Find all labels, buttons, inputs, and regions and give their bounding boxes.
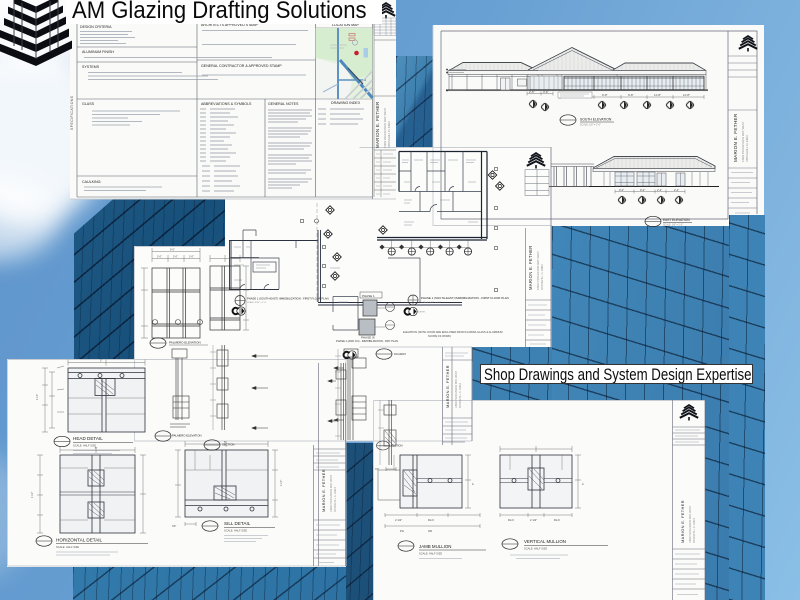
svg-text:MARION E. FETHER: MARION E. FETHER (445, 365, 450, 408)
svg-text:PH: PH (400, 529, 404, 533)
svg-text:SPRINGHILL FL 34610: SPRINGHILL FL 34610 (693, 518, 696, 543)
svg-text:GLASS: GLASS (82, 102, 95, 106)
svg-text:13902 PROCESSION WAY, WEST: 13902 PROCESSION WAY, WEST (741, 121, 745, 162)
svg-text:SPRINGHILL FL 34610: SPRINGHILL FL 34610 (459, 383, 462, 408)
svg-text:2 1/2": 2 1/2" (530, 518, 537, 522)
svg-text:PALMERO ELEVATION: PALMERO ELEVATION (172, 434, 202, 438)
svg-text:EAST ELEVATION: EAST ELEVATION (663, 218, 690, 222)
svg-text:SECTION: SECTION (391, 444, 403, 448)
svg-text:PHASE 1 (SOUTH-EAST) IMMOBILIZ: PHASE 1 (SOUTH-EAST) IMMOBILIZATION - FI… (421, 296, 509, 300)
svg-text:PHASE 1: PHASE 1 (362, 294, 375, 298)
svg-text:PALMERO: PALMERO (394, 353, 406, 356)
svg-text:MARION E. FETHER: MARION E. FETHER (733, 113, 738, 162)
svg-text:9'-0": 9'-0" (619, 188, 624, 192)
svg-text:SCALE: 3/32" = 1'-0": SCALE: 3/32" = 1'-0" (247, 301, 267, 304)
svg-text:5": 5" (472, 483, 475, 485)
svg-text:DRAWING INDEX: DRAWING INDEX (331, 101, 361, 105)
svg-text:3'-0": 3'-0" (157, 256, 162, 259)
svg-text:SCALE: HALF SIZE: SCALE: HALF SIZE (524, 547, 547, 551)
svg-text:SCALE: HALF SIZE: SCALE: HALF SIZE (419, 552, 442, 556)
svg-text:13902 PROCESSION WAY, WEST: 13902 PROCESSION WAY, WEST (689, 505, 692, 543)
svg-text:11'-8": 11'-8" (683, 93, 690, 97)
svg-text:ABBREVIATIONS & SYMBOLS: ABBREVIATIONS & SYMBOLS (201, 102, 252, 106)
svg-text:SPRINGHILL FL 34610: SPRINGHILL FL 34610 (745, 135, 749, 162)
svg-text:2'-4": 2'-4" (674, 188, 679, 192)
svg-text:CAULKING:: CAULKING: (82, 180, 101, 184)
svg-text:3/8": 3/8" (375, 468, 379, 471)
svg-text:9'-0": 9'-0" (640, 188, 645, 192)
svg-text:13902 PROCESSION WAY, WEST: 13902 PROCESSION WAY, WEST (383, 107, 387, 148)
svg-text:SCALE: HALF SIZE: SCALE: HALF SIZE (56, 545, 79, 549)
svg-text:VERTICAL MULLION: VERTICAL MULLION (524, 539, 566, 544)
svg-text:2 1/2": 2 1/2" (31, 492, 34, 498)
svg-text:SPRINGHILL FL 34610: SPRINGHILL FL 34610 (334, 487, 337, 512)
svg-text:HEAD DETAIL: HEAD DETAIL (73, 436, 103, 441)
svg-text:9'-0": 9'-0" (170, 249, 175, 252)
svg-text:SCOPE OF WORK): SCOPE OF WORK) (428, 334, 451, 338)
svg-text:MARION E. FETHER: MARION E. FETHER (680, 500, 685, 543)
svg-text:DLO: DLO (508, 518, 515, 522)
svg-text:MARION E. FETHER: MARION E. FETHER (321, 469, 326, 512)
svg-text:SCALE: 1/8" = 1'-0": SCALE: 1/8" = 1'-0" (663, 224, 683, 227)
svg-text:2'-6": 2'-6" (529, 90, 535, 94)
svg-text:2 1/2": 2 1/2" (395, 518, 402, 522)
svg-text:3'-0": 3'-0" (173, 256, 178, 259)
svg-text:DLO: DLO (428, 518, 435, 522)
svg-text:SILL DETAIL: SILL DETAIL (224, 521, 251, 526)
svg-text:OD: OD (428, 529, 432, 533)
svg-text:GENERAL NOTES: GENERAL NOTES (268, 102, 299, 106)
svg-text:3'-6": 3'-6" (543, 90, 549, 94)
svg-text:SECTION: SECTION (222, 443, 234, 447)
svg-text:5": 5" (582, 483, 585, 485)
svg-text:2 1/2": 2 1/2" (280, 480, 283, 486)
svg-text:3/8": 3/8" (172, 525, 176, 528)
svg-text:13902 PROCESSION WAY, WEST: 13902 PROCESSION WAY, WEST (537, 251, 540, 290)
svg-text:2 1/2": 2 1/2" (36, 394, 39, 400)
svg-text:HORIZONTAL DETAIL: HORIZONTAL DETAIL (56, 538, 103, 543)
svg-text:SPRINGHILL FL 34610: SPRINGHILL FL 34610 (387, 121, 391, 148)
svg-text:SPECIFICATIONS: SPECIFICATIONS (70, 95, 74, 130)
svg-text:11'-8": 11'-8" (654, 93, 661, 97)
svg-text:3'-0": 3'-0" (189, 256, 194, 259)
svg-text:SCALE: 1/8" = 1'-0": SCALE: 1/8" = 1'-0" (580, 124, 601, 127)
svg-text:13902 PROCESSION WAY, WEST: 13902 PROCESSION WAY, WEST (330, 474, 333, 512)
svg-text:PHASE 1 (AND CO) - IMMOBILIZAT: PHASE 1 (AND CO) - IMMOBILIZATION - DRY … (336, 339, 398, 343)
svg-text:SCALE: HALF SIZE: SCALE: HALF SIZE (224, 529, 247, 533)
svg-text:MARION E. FETHER: MARION E. FETHER (528, 245, 533, 290)
svg-text:DLO: DLO (554, 518, 561, 522)
svg-text:SCALE: 3/32" = 1'-0": SCALE: 3/32" = 1'-0" (421, 301, 441, 304)
svg-text:SCALE: HALF SIZE: SCALE: HALF SIZE (73, 444, 96, 448)
svg-text:NORTH: NORTH (417, 312, 425, 314)
svg-text:GENERAL CONTRACTOR & APPROVED: GENERAL CONTRACTOR & APPROVED STAMP (201, 64, 282, 68)
svg-text:PHASE 1 (SOUTH-EAST) IMMOBILIZ: PHASE 1 (SOUTH-EAST) IMMOBILIZATION - FI… (247, 297, 329, 301)
svg-text:PALMERO ELEVATION: PALMERO ELEVATION (169, 341, 201, 345)
svg-text:5": 5" (95, 447, 97, 450)
svg-text:MARION E. FETHER: MARION E. FETHER (375, 101, 380, 148)
svg-text:5": 5" (100, 360, 102, 363)
svg-text:13902 PROCESSION WAY, WEST: 13902 PROCESSION WAY, WEST (455, 370, 458, 408)
svg-text:SPRINGHILL FL 34610: SPRINGHILL FL 34610 (541, 263, 544, 290)
svg-text:9'-8": 9'-8" (628, 93, 634, 97)
svg-text:SOUTH ELEVATION: SOUTH ELEVATION (580, 118, 612, 122)
svg-text:PHASE III: PHASE III (361, 336, 375, 340)
svg-text:9'-8": 9'-8" (602, 93, 608, 97)
svg-text:ELEVATION (NOTE: DOOR ARE EN: ELEVATION (NOTE: DOOR ARE ENCLOSED FROM … (403, 330, 503, 334)
svg-text:JAMB MULLION: JAMB MULLION (419, 544, 451, 549)
svg-text:2'-4": 2'-4" (657, 188, 662, 192)
